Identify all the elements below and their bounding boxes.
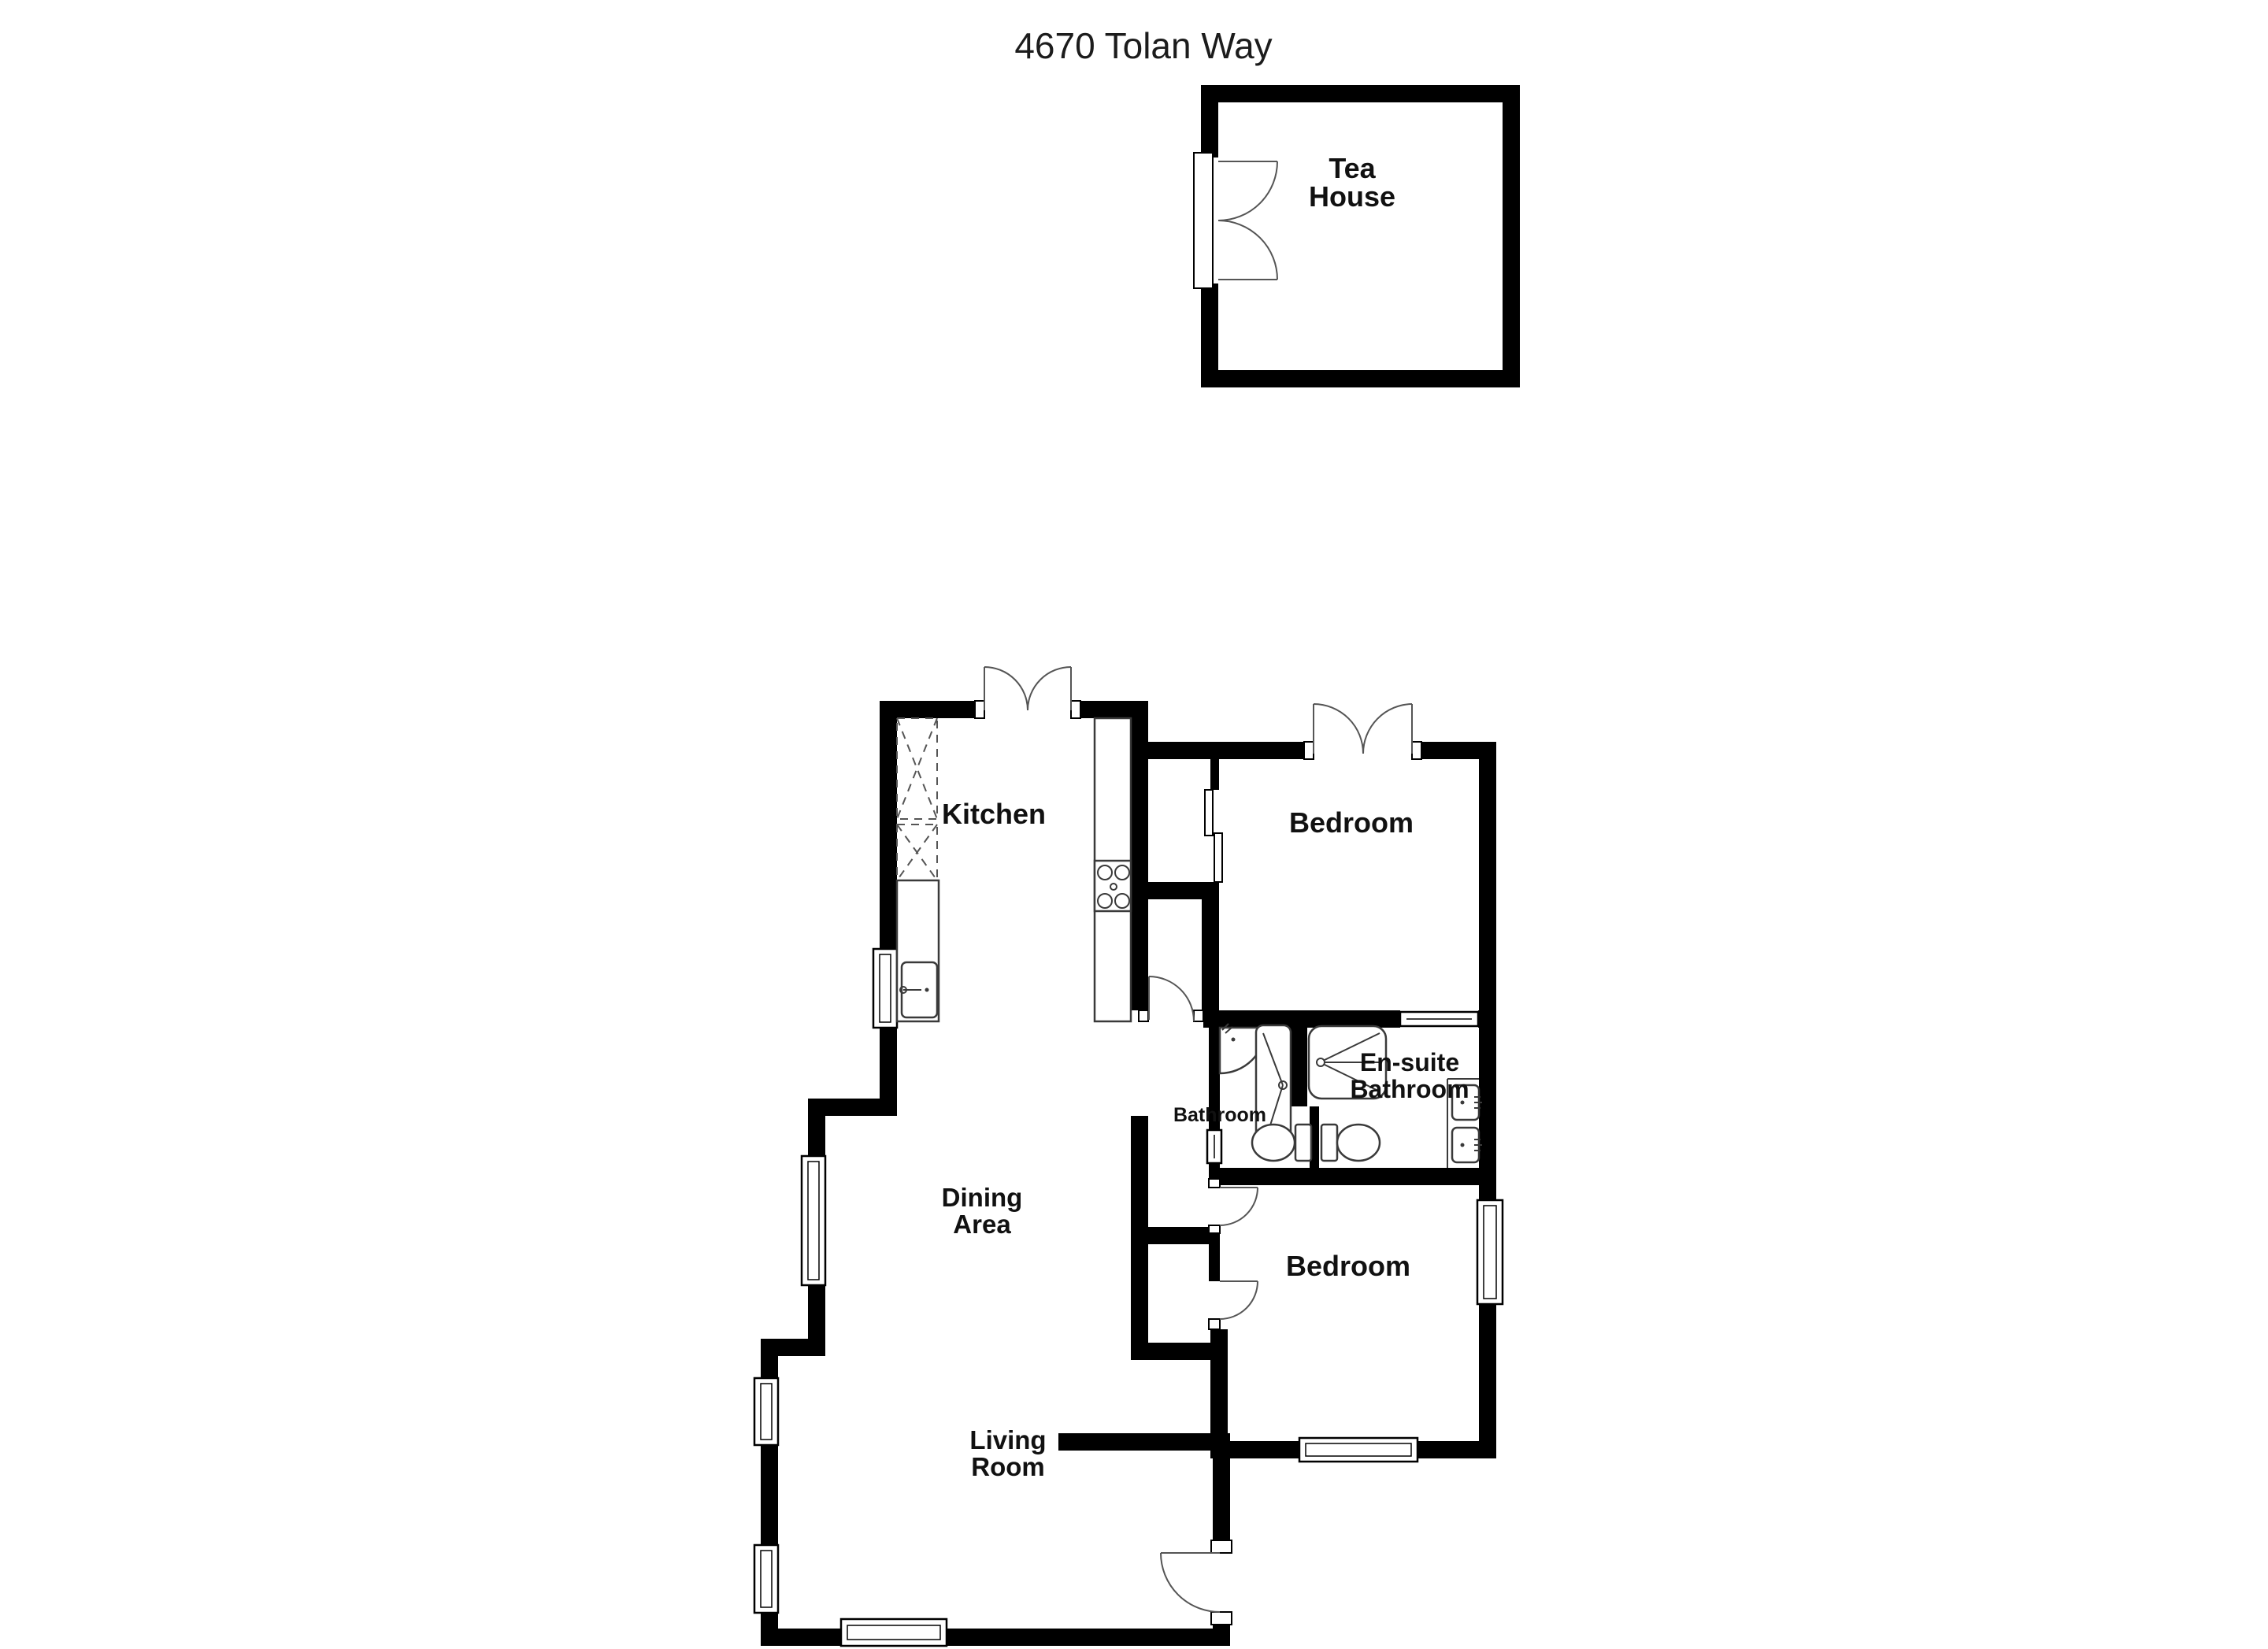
kitchen-entry-frame-right	[1071, 701, 1080, 718]
living-window-upper-left	[754, 1378, 778, 1445]
room-label-bedroom-bottom: Bedroom	[1286, 1250, 1410, 1282]
bedroom-top-double-door	[1314, 704, 1412, 754]
ensuite-glazed-panel	[1400, 1012, 1478, 1026]
tea-house-walls	[1201, 85, 1520, 387]
closet-door-frame-bottom	[1209, 1319, 1220, 1329]
room-label-dining: Dining Area	[942, 1183, 1023, 1239]
kitchen-wardrobe-cabinet-upper	[897, 718, 937, 819]
tea-house-door-frame	[1194, 153, 1213, 288]
svg-text:Dining: Dining	[942, 1183, 1023, 1212]
bedroom-top-entry-frame-left	[1304, 742, 1314, 759]
room-label-tea-house: Tea House	[1309, 152, 1395, 213]
bedroom-bottom-window-right	[1477, 1200, 1503, 1304]
bedroom-top-closet-sliding-doors	[1205, 790, 1222, 882]
kitchen-sink	[900, 962, 937, 1017]
bedroom-bottom-entry-door	[1220, 1188, 1258, 1225]
kitchen-wardrobe-cabinet-lower	[897, 824, 937, 880]
svg-text:House: House	[1309, 180, 1395, 213]
bedroom-bottom-window-bottom	[1299, 1438, 1417, 1462]
room-label-kitchen: Kitchen	[942, 798, 1046, 830]
living-door-frame-top	[1211, 1540, 1232, 1553]
kitchen-hob	[1095, 861, 1131, 911]
floor-plan-drawing: 4670 Tolan Way Tea House Kitchen Bedroom…	[0, 0, 2268, 1649]
hall-door-frame-right	[1194, 1010, 1203, 1021]
room-label-bathroom: Bathroom	[1173, 1104, 1266, 1126]
bedroom-bottom-door-frame-mid	[1209, 1225, 1220, 1233]
room-label-bedroom-top: Bedroom	[1289, 806, 1414, 839]
tea-house-double-door	[1218, 161, 1277, 280]
ensuite-toilet	[1321, 1125, 1380, 1161]
svg-text:Room: Room	[971, 1452, 1045, 1481]
ensuite-basin-lower	[1452, 1128, 1482, 1162]
svg-text:Bathroom: Bathroom	[1350, 1075, 1469, 1103]
living-window-lower-left	[754, 1545, 778, 1613]
kitchen-window	[873, 949, 897, 1028]
kitchen-double-door	[984, 667, 1071, 710]
dining-window	[802, 1156, 825, 1285]
room-label-living: Living Room	[969, 1425, 1046, 1481]
bedroom-bottom-door-frame-top	[1209, 1179, 1220, 1188]
kitchen-entry-frame-left	[975, 701, 984, 718]
kitchen-fixtures	[897, 718, 1222, 1021]
walls-layer	[761, 85, 1520, 1646]
svg-text:En-suite: En-suite	[1360, 1048, 1459, 1076]
living-exterior-door	[1161, 1553, 1220, 1612]
room-label-ensuite: En-suite Bathroom	[1350, 1048, 1469, 1103]
living-window-bottom	[841, 1619, 947, 1646]
svg-text:Tea: Tea	[1329, 152, 1376, 184]
hall-door-frame-left	[1139, 1010, 1148, 1021]
bedroom-top-entry-frame-right	[1412, 742, 1421, 759]
bathroom-pocket-door	[1207, 1130, 1221, 1163]
living-door-frame-bottom	[1211, 1612, 1232, 1625]
bathroom-toilet	[1252, 1125, 1311, 1161]
floor-plan-page: 4670 Tolan Way Tea House Kitchen Bedroom…	[0, 0, 2268, 1649]
bedroom-bottom-closet-door	[1220, 1281, 1258, 1319]
svg-text:Living: Living	[969, 1425, 1046, 1454]
page-title: 4670 Tolan Way	[1014, 25, 1272, 66]
svg-text:Area: Area	[953, 1210, 1011, 1239]
hall-door	[1149, 976, 1194, 1021]
